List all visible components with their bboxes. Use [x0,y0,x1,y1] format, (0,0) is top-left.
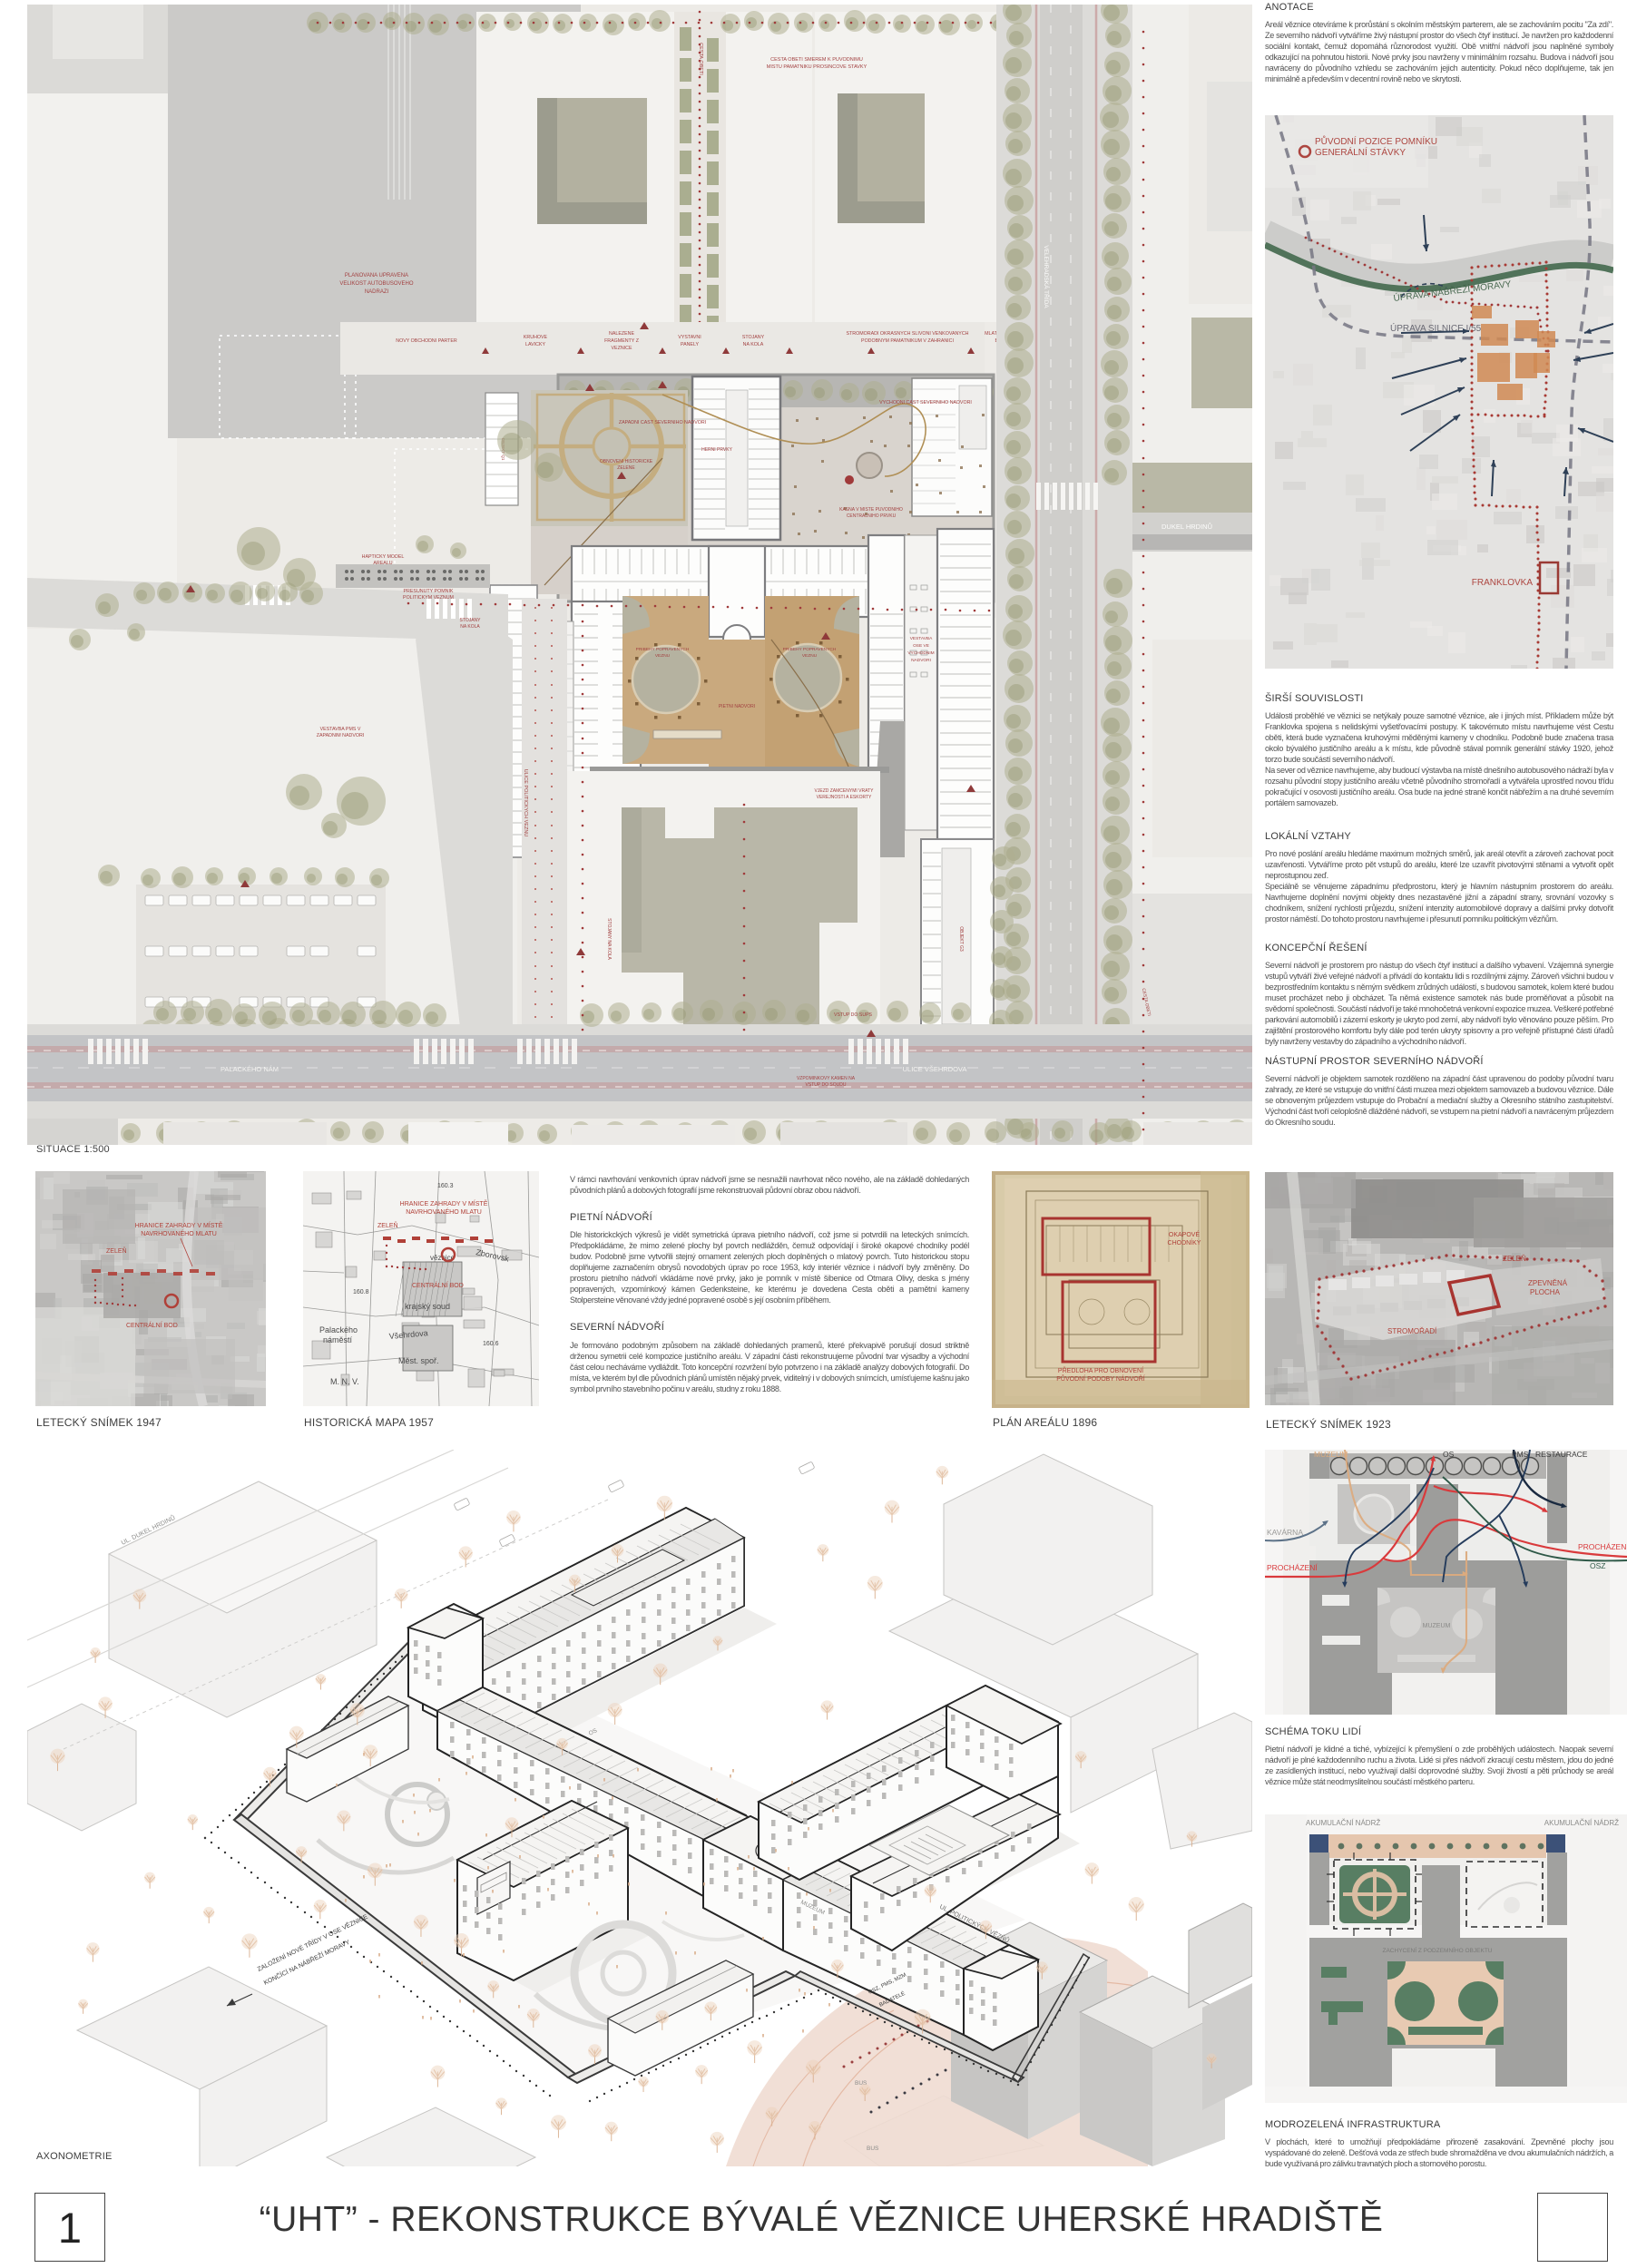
svg-text:LAVICKY: LAVICKY [525,342,545,347]
svg-text:ZELEŇ: ZELEŇ [1503,1255,1526,1263]
svg-text:VJEZD ZAMCENYMI VRATY: VJEZD ZAMCENYMI VRATY [815,788,875,794]
svg-text:MUZEUM: MUZEUM [1314,1450,1348,1459]
svg-text:Měst. spoř.: Měst. spoř. [398,1356,439,1365]
svg-text:DUKEL HRDINŮ: DUKEL HRDINŮ [1161,523,1212,531]
svg-text:PRESUNUTY POMNIK: PRESUNUTY POMNIK [404,589,454,594]
svg-text:VYSTAVNI: VYSTAVNI [678,335,701,340]
svg-text:PMS: PMS [1512,1450,1529,1459]
svg-text:OBNOVENI HISTORICKE: OBNOVENI HISTORICKE [600,459,653,464]
svg-text:CENTRÁLNÍ BOD: CENTRÁLNÍ BOD [126,1321,178,1329]
svg-text:HRANICE ZAHRADY V MÍSTĚ: HRANICE ZAHRADY V MÍSTĚ [135,1221,223,1229]
svg-text:NAVRHOVANÉHO MLATU: NAVRHOVANÉHO MLATU [406,1207,482,1216]
svg-text:VEZNICE: VEZNICE [612,346,632,351]
svg-text:STOJANY: STOJANY [460,618,482,623]
svg-text:PLANOVANA UPRAVENA: PLANOVANA UPRAVENA [345,273,408,279]
svg-text:náměstí: náměstí [323,1335,353,1344]
svg-text:AKUMULAČNÍ NÁDRŽ: AKUMULAČNÍ NÁDRŽ [1544,1819,1619,1827]
svg-text:KRUHOVE: KRUHOVE [524,335,548,340]
svg-text:OSZ: OSZ [1590,1561,1605,1570]
svg-text:ULICE POLITICKYCH VEZNU: ULICE POLITICKYCH VEZNU [523,769,528,837]
svg-text:VEREJNOSTI A ESKORTY: VEREJNOSTI A ESKORTY [817,795,872,800]
svg-text:PŮVODNÍ POZICE POMNÍKU: PŮVODNÍ POZICE POMNÍKU [1315,135,1437,147]
svg-text:NADVORI: NADVORI [911,658,931,663]
svg-text:Palackého: Palackého [319,1325,358,1334]
svg-text:GENERÁLNÍ STÁVKY: GENERÁLNÍ STÁVKY [1315,146,1406,158]
svg-text:FRAGMENTY Z: FRAGMENTY Z [604,338,640,344]
svg-text:AKUMULAČNÍ NÁDRŽ: AKUMULAČNÍ NÁDRŽ [1306,1819,1380,1827]
svg-text:HERNI PRVKY: HERNI PRVKY [701,447,732,453]
svg-text:HAPTICKY MODEL: HAPTICKY MODEL [362,554,405,560]
svg-text:ULICE VŠEHRDOVA: ULICE VŠEHRDOVA [903,1065,967,1073]
svg-text:PROCHÁZENÍ: PROCHÁZENÍ [1267,1563,1318,1572]
svg-text:ZAPADNI CAST SEVERNIHO NADVORI: ZAPADNI CAST SEVERNIHO NADVORI [619,420,706,425]
svg-text:ZELEŇ: ZELEŇ [106,1246,127,1255]
svg-text:160.3: 160.3 [437,1183,454,1189]
svg-text:PŘEDLOHA PRO OBNOVENÍ: PŘEDLOHA PRO OBNOVENÍ [1058,1366,1143,1374]
svg-text:CENTRÁLNÍ BOD: CENTRÁLNÍ BOD [412,1281,464,1289]
svg-text:VEZNU: VEZNU [802,653,818,659]
svg-text:CESTA OBETI SMEREM K PUVODNIMU: CESTA OBETI SMEREM K PUVODNIMU [770,57,863,63]
svg-text:VESTAVBA: VESTAVBA [910,636,933,641]
svg-text:HRANICE ZAHRADY V MÍSTĚ: HRANICE ZAHRADY V MÍSTĚ [400,1199,488,1207]
svg-text:MISTU PAMATNIKU PROSINCOVE STA: MISTU PAMATNIKU PROSINCOVE STAVKY [767,64,867,70]
svg-text:VSTUP DO SUPS: VSTUP DO SUPS [834,1012,873,1018]
svg-text:MUZEUM: MUZEUM [1423,1623,1451,1629]
svg-text:ZELEŇ: ZELEŇ [377,1221,398,1229]
svg-text:VELIKOST AUTOBUSOVEHO: VELIKOST AUTOBUSOVEHO [339,281,413,287]
svg-text:VYCHODNIM: VYCHODNIM [907,650,934,656]
svg-text:160.6: 160.6 [483,1341,499,1347]
svg-text:OS: OS [1443,1450,1455,1459]
svg-text:PANELY: PANELY [681,342,700,347]
svg-text:PRIBEHY POPRAVENYCH: PRIBEHY POPRAVENYCH [783,647,837,652]
svg-text:ZELENE: ZELENE [617,465,635,471]
svg-text:ZACHYCENÍ Z PODZEMNÍHO OBJEKTU: ZACHYCENÍ Z PODZEMNÍHO OBJEKTU [1383,1946,1493,1954]
svg-text:PLOCHA: PLOCHA [1530,1288,1561,1296]
svg-text:BUS: BUS [867,2146,879,2152]
svg-text:NALEZENE: NALEZENE [609,331,634,337]
svg-text:NA KOLA: NA KOLA [460,624,480,630]
svg-text:CHODNÍKY: CHODNÍKY [1168,1238,1201,1246]
svg-text:ZPEVNĚNÁ: ZPEVNĚNÁ [1528,1279,1568,1287]
svg-text:VZPOMINKOVY KAMEN NA: VZPOMINKOVY KAMEN NA [797,1076,856,1081]
svg-text:VEZNU: VEZNU [655,653,671,659]
svg-text:OKAPOVÉ: OKAPOVÉ [1169,1230,1201,1238]
svg-text:NOVY OBCHODNI PARTER: NOVY OBCHODNI PARTER [396,338,457,344]
svg-text:OSE VE: OSE VE [913,643,929,649]
svg-text:OBJEKT G3: OBJEKT G3 [958,926,964,952]
svg-text:160.8: 160.8 [353,1289,369,1295]
svg-text:VESTAVBA PMS V: VESTAVBA PMS V [320,727,361,732]
svg-text:PŮVODNÍ PODOBY NÁDVOŘÍ: PŮVODNÍ PODOBY NÁDVOŘÍ [1056,1374,1145,1383]
svg-text:VSTUP DO SOUDU: VSTUP DO SOUDU [806,1082,847,1088]
svg-text:NADRAZI: NADRAZI [365,289,389,295]
svg-text:STOJANY: STOJANY [742,335,765,340]
svg-text:POLITICKYM VEZNUM: POLITICKYM VEZNUM [403,595,454,601]
svg-text:RESTAURACE: RESTAURACE [1535,1450,1588,1459]
svg-text:KASNA V MISTE PUVODNIHO: KASNA V MISTE PUVODNIHO [839,507,903,513]
svg-text:PODOBNYM PAMATNIKUM V ZAHRANIC: PODOBNYM PAMATNIKUM V ZAHRANICI [861,338,954,344]
svg-text:PALACKÉHO NÁM: PALACKÉHO NÁM [221,1065,279,1073]
svg-text:krajský soud: krajský soud [405,1302,450,1311]
svg-text:NAVRHOVANÉHO MLATU: NAVRHOVANÉHO MLATU [141,1229,217,1237]
svg-text:ZAPADNIM NADVORI: ZAPADNIM NADVORI [317,733,365,738]
svg-text:FRANKLOVKA: FRANKLOVKA [1472,578,1534,588]
svg-text:STROMOŘADÍ: STROMOŘADÍ [1387,1327,1437,1335]
svg-text:M. N. V.: M. N. V. [330,1377,359,1386]
svg-text:PIETNI NADVORI: PIETNI NADVORI [719,704,755,709]
svg-text:CESTA OBETI: CESTA OBETI [698,43,703,75]
svg-text:PRIBEHY POPRAVENYCH: PRIBEHY POPRAVENYCH [636,647,690,652]
svg-text:CENTRALNIHO PRVKU: CENTRALNIHO PRVKU [847,513,897,519]
svg-text:NA KOLA: NA KOLA [743,342,764,347]
svg-text:VELEHRADSKÁ TŘÍDA: VELEHRADSKÁ TŘÍDA [1043,245,1051,308]
svg-text:STROMORADI OKRASNYCH SLIVONI V: STROMORADI OKRASNYCH SLIVONI VENKOVANYCH [847,331,969,337]
svg-text:PROCHÁZENÍ: PROCHÁZENÍ [1578,1542,1627,1551]
svg-text:VYCHODNI CAST SEVERNIHO NADVOR: VYCHODNI CAST SEVERNIHO NADVORI [879,400,972,406]
svg-text:STOJANY NA KOLA: STOJANY NA KOLA [606,918,612,960]
svg-text:KAVÁRNA: KAVÁRNA [1267,1528,1303,1537]
